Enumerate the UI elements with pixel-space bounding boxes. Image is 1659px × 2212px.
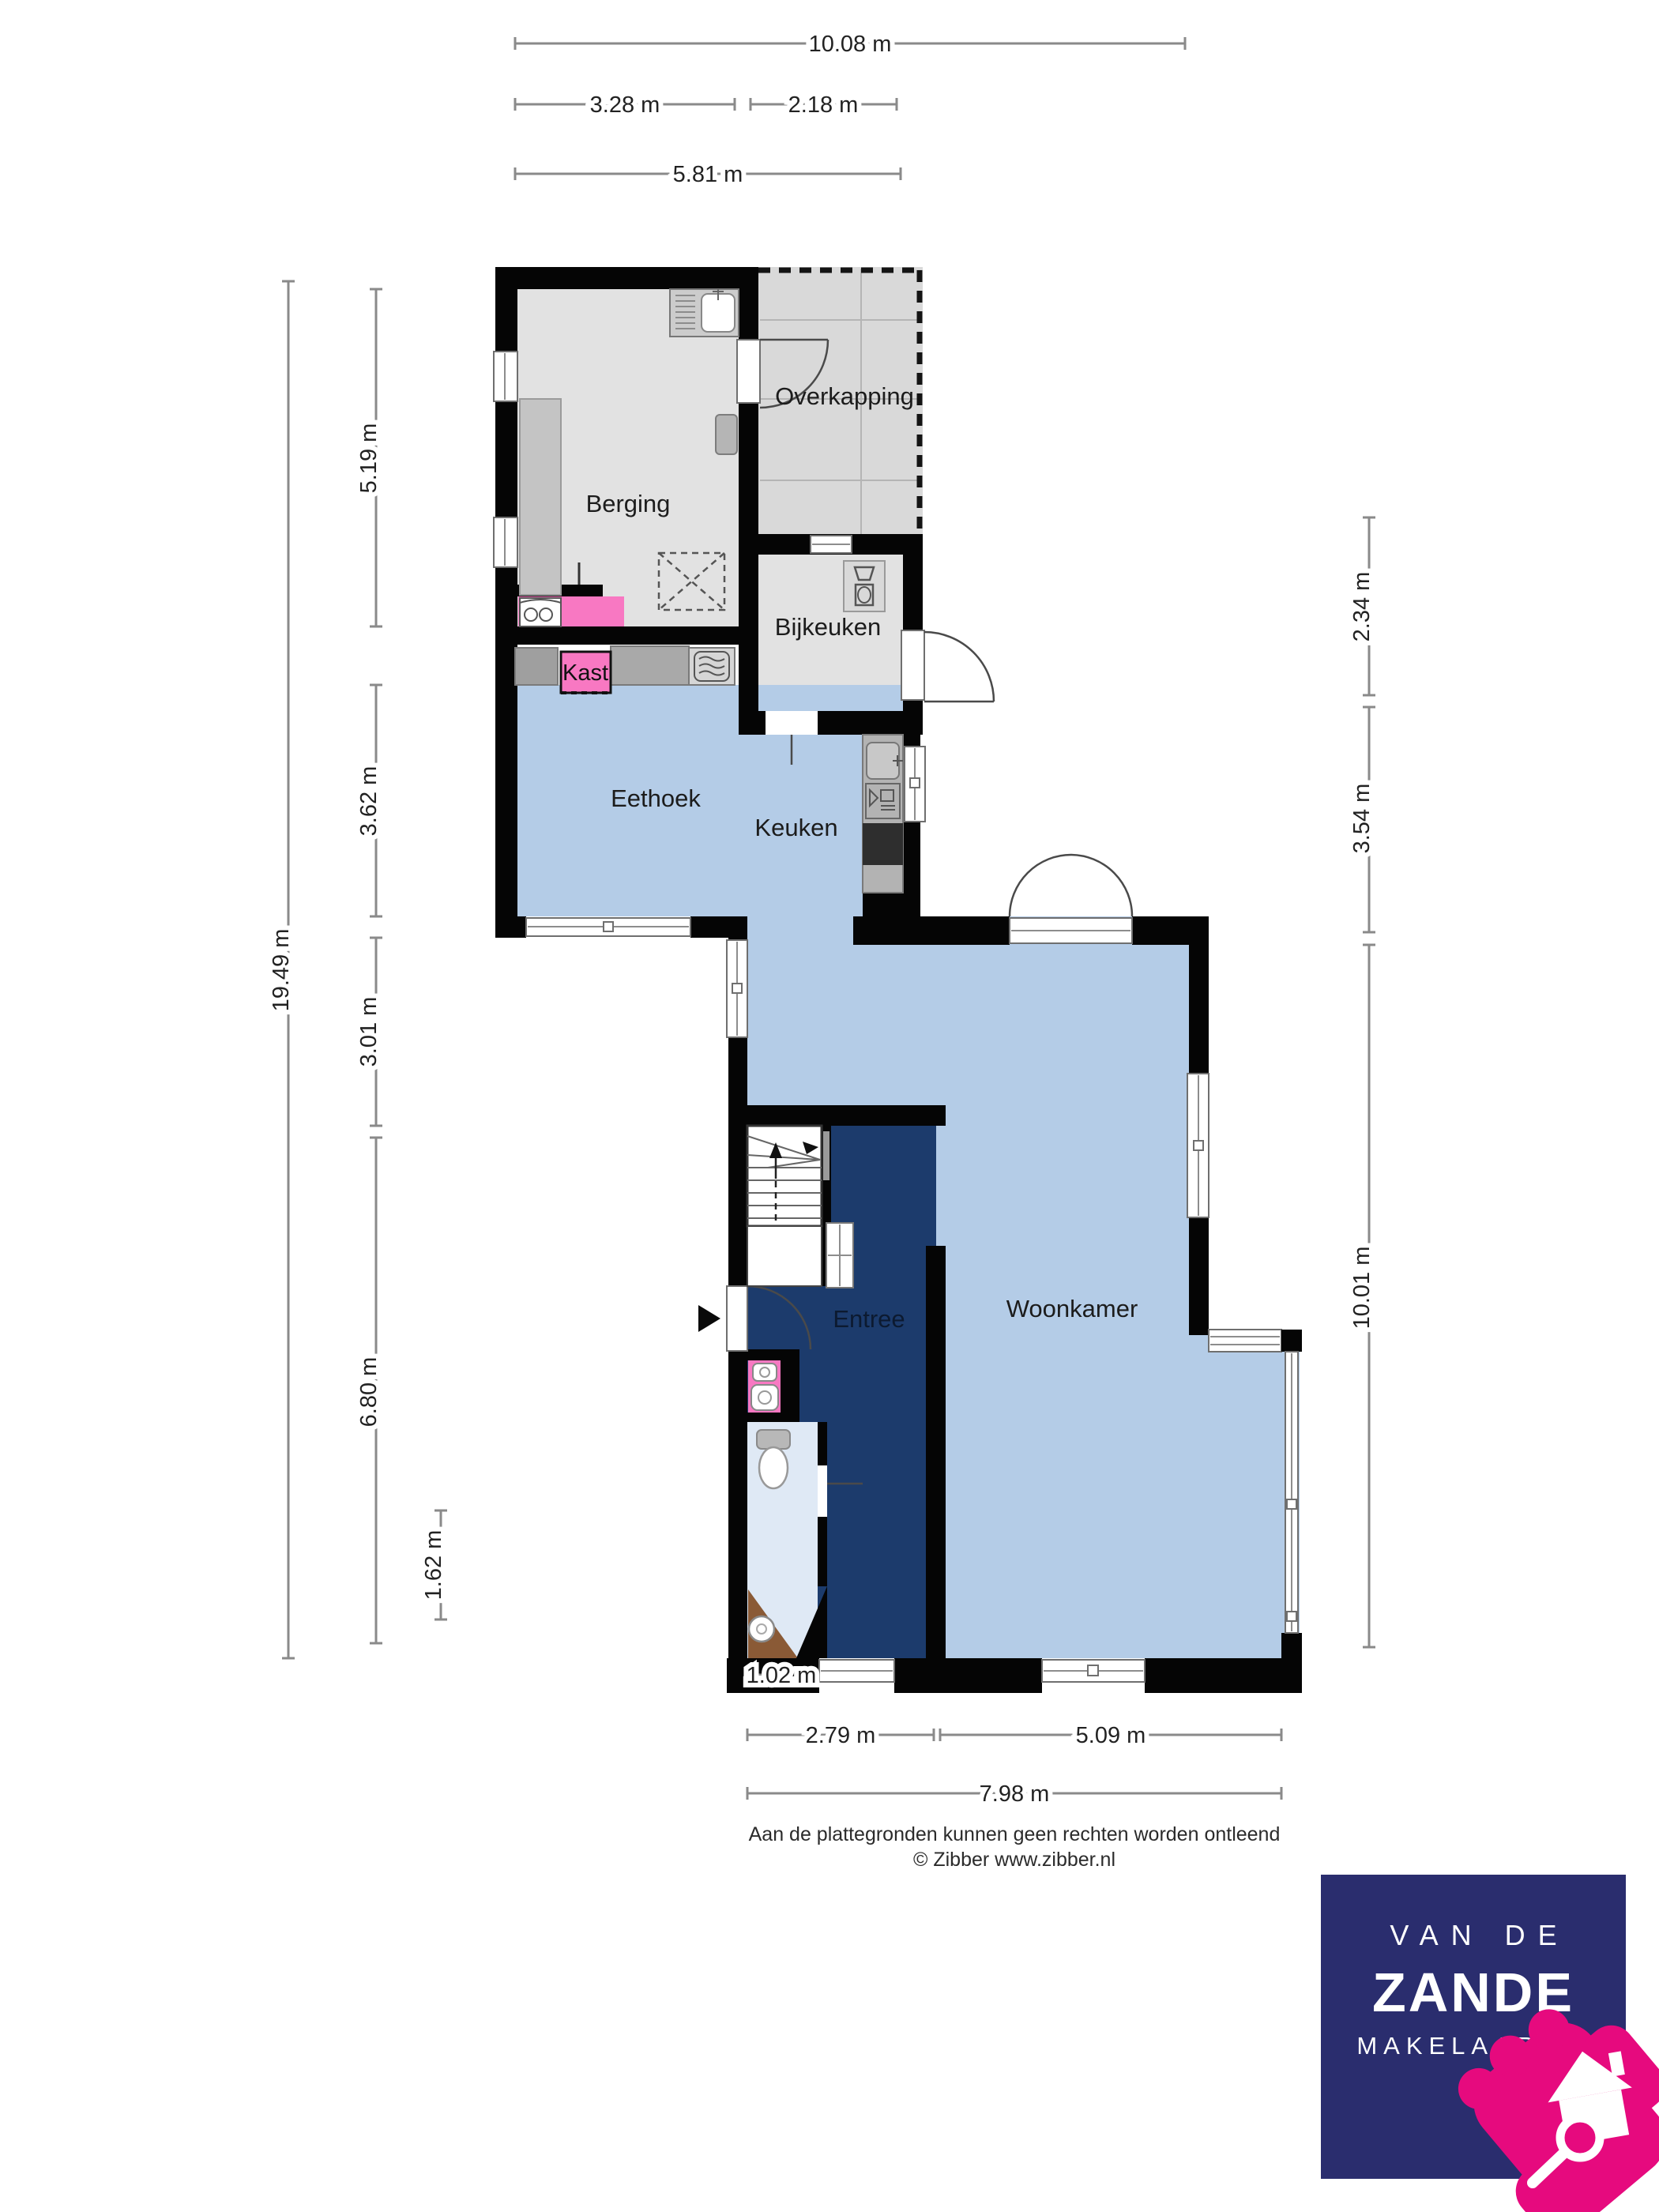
floor-fills [515, 267, 1300, 1658]
window-bijkeuken-top [811, 536, 852, 553]
svg-text:2.34 m: 2.34 m [1349, 572, 1375, 642]
dimensions-top: 10.08 m 3.28 m 2.18 m 5.81 m [515, 32, 1185, 187]
svg-text:10.01 m: 10.01 m [1349, 1247, 1375, 1330]
window-woonkamer-right [1187, 1074, 1209, 1217]
window-bottom-1 [819, 1660, 894, 1682]
dim-bottom-seg4: 7.98 m [747, 1781, 1281, 1807]
dim-top-total: 10.08 m [515, 32, 1185, 57]
dim-right-seg3: 10.01 m [1349, 945, 1375, 1647]
door-french-woonkamer [1010, 855, 1132, 943]
wall-cabinet [716, 415, 737, 454]
dimensions-right: 2.34 m 3.54 m 10.01 m [1349, 517, 1375, 1647]
washing-machine-icon [518, 596, 624, 626]
floorplan-canvas: Berging Overkapping Bijkeuken Eethoek Ke… [0, 0, 1659, 2212]
entrance-arrow-icon [698, 1305, 720, 1332]
svg-text:5.19 m: 5.19 m [356, 423, 382, 494]
svg-text:5.81 m: 5.81 m [673, 162, 743, 187]
label-bijkeuken: Bijkeuken [775, 613, 881, 641]
dim-left-seg3: 3.01 m [356, 938, 382, 1126]
svg-text:5.09 m: 5.09 m [1076, 1723, 1146, 1748]
understairs-closet [747, 1226, 822, 1286]
svg-text:2.18 m: 2.18 m [788, 92, 859, 118]
washbasin-icon [749, 1616, 774, 1642]
window-corridor-left [727, 940, 747, 1037]
label-eethoek: Eethoek [611, 784, 701, 812]
logo-line1: VAN DE [1390, 1919, 1569, 1951]
footer-disclaimer: Aan de plattegronden kunnen geen rechten… [749, 1823, 1281, 1845]
door-understairs-closet [826, 1223, 853, 1288]
svg-text:6.80 m: 6.80 m [356, 1357, 382, 1428]
footer-credit: © Zibber www.zibber.nl [913, 1849, 1115, 1871]
staircase [747, 1126, 829, 1286]
dim-left-seg5: 1.62 m [421, 1510, 447, 1619]
door-bijkeuken-outside [901, 630, 994, 702]
dim-top-seg3: 5.81 m [515, 162, 901, 187]
dim-left-seg2: 3.62 m [356, 685, 382, 916]
dimensions-left: 19.49 m 5.19 m 3.62 m 3.01 m 6.80 m [269, 281, 447, 1658]
dim-top-seg2: 2.18 m [750, 92, 897, 118]
svg-text:3.28 m: 3.28 m [590, 92, 660, 118]
dim-bottom-seg1: 1.02 m [747, 1663, 817, 1688]
kitchen-sink-icon [867, 743, 903, 779]
dim-bottom-seg2: 2.79 m [747, 1723, 934, 1748]
brand-logo: VAN DE ZANDE MAKELAARDIJ [1321, 1875, 1659, 2212]
dim-left-seg1: 5.19 m [356, 289, 382, 626]
floorplan-page: Berging Overkapping Bijkeuken Eethoek Ke… [0, 0, 1659, 2212]
window-keuken-right [905, 747, 925, 822]
window-seat-glass [1285, 1352, 1298, 1633]
label-entree: Entree [833, 1305, 905, 1333]
svg-text:7.98 m: 7.98 m [980, 1781, 1050, 1807]
window-berging-left-1 [494, 352, 517, 401]
dryer-icon [844, 561, 885, 611]
dim-left-total: 19.49 m [269, 281, 295, 1658]
sink-icon [670, 289, 739, 337]
microwave-icon [689, 648, 735, 685]
toilet-icon [757, 1430, 790, 1488]
toilet-roll-icon [753, 1364, 777, 1381]
svg-text:3.54 m: 3.54 m [1349, 784, 1375, 854]
kitchen-counter [863, 735, 903, 893]
dim-left-seg4: 6.80 m [356, 1138, 382, 1643]
svg-text:19.49 m: 19.49 m [269, 929, 294, 1012]
svg-text:3.62 m: 3.62 m [356, 766, 382, 837]
window-eethoek-bottom [526, 918, 690, 936]
footer: Aan de plattegronden kunnen geen rechten… [749, 1823, 1281, 1871]
svg-text:1.02 m: 1.02 m [747, 1663, 817, 1688]
wc-nook [748, 1360, 781, 1413]
dim-right-seg2: 3.54 m [1349, 707, 1375, 932]
label-overkapping: Overkapping [775, 382, 914, 410]
dim-top-seg1: 3.28 m [515, 92, 735, 118]
label-woonkamer: Woonkamer [1006, 1295, 1138, 1322]
svg-text:3.01 m: 3.01 m [356, 997, 382, 1067]
label-keuken: Keuken [754, 814, 837, 841]
workbench [520, 399, 561, 595]
svg-text:1.62 m: 1.62 m [421, 1530, 446, 1601]
dim-right-seg1: 2.34 m [1349, 517, 1375, 695]
label-berging: Berging [586, 490, 671, 517]
toilet-small-icon [751, 1385, 778, 1410]
svg-text:10.08 m: 10.08 m [809, 32, 892, 57]
stairs-door-strip [823, 1131, 829, 1180]
label-kast: Kast [562, 660, 608, 686]
counter-left [515, 648, 558, 685]
counter-mid [611, 646, 689, 685]
window-berging-left-2 [494, 517, 517, 567]
svg-text:2.79 m: 2.79 m [806, 1723, 876, 1748]
dim-bottom-seg3: 5.09 m [940, 1723, 1281, 1748]
window-bottom-2 [1042, 1660, 1145, 1682]
stove-icon [863, 823, 903, 865]
